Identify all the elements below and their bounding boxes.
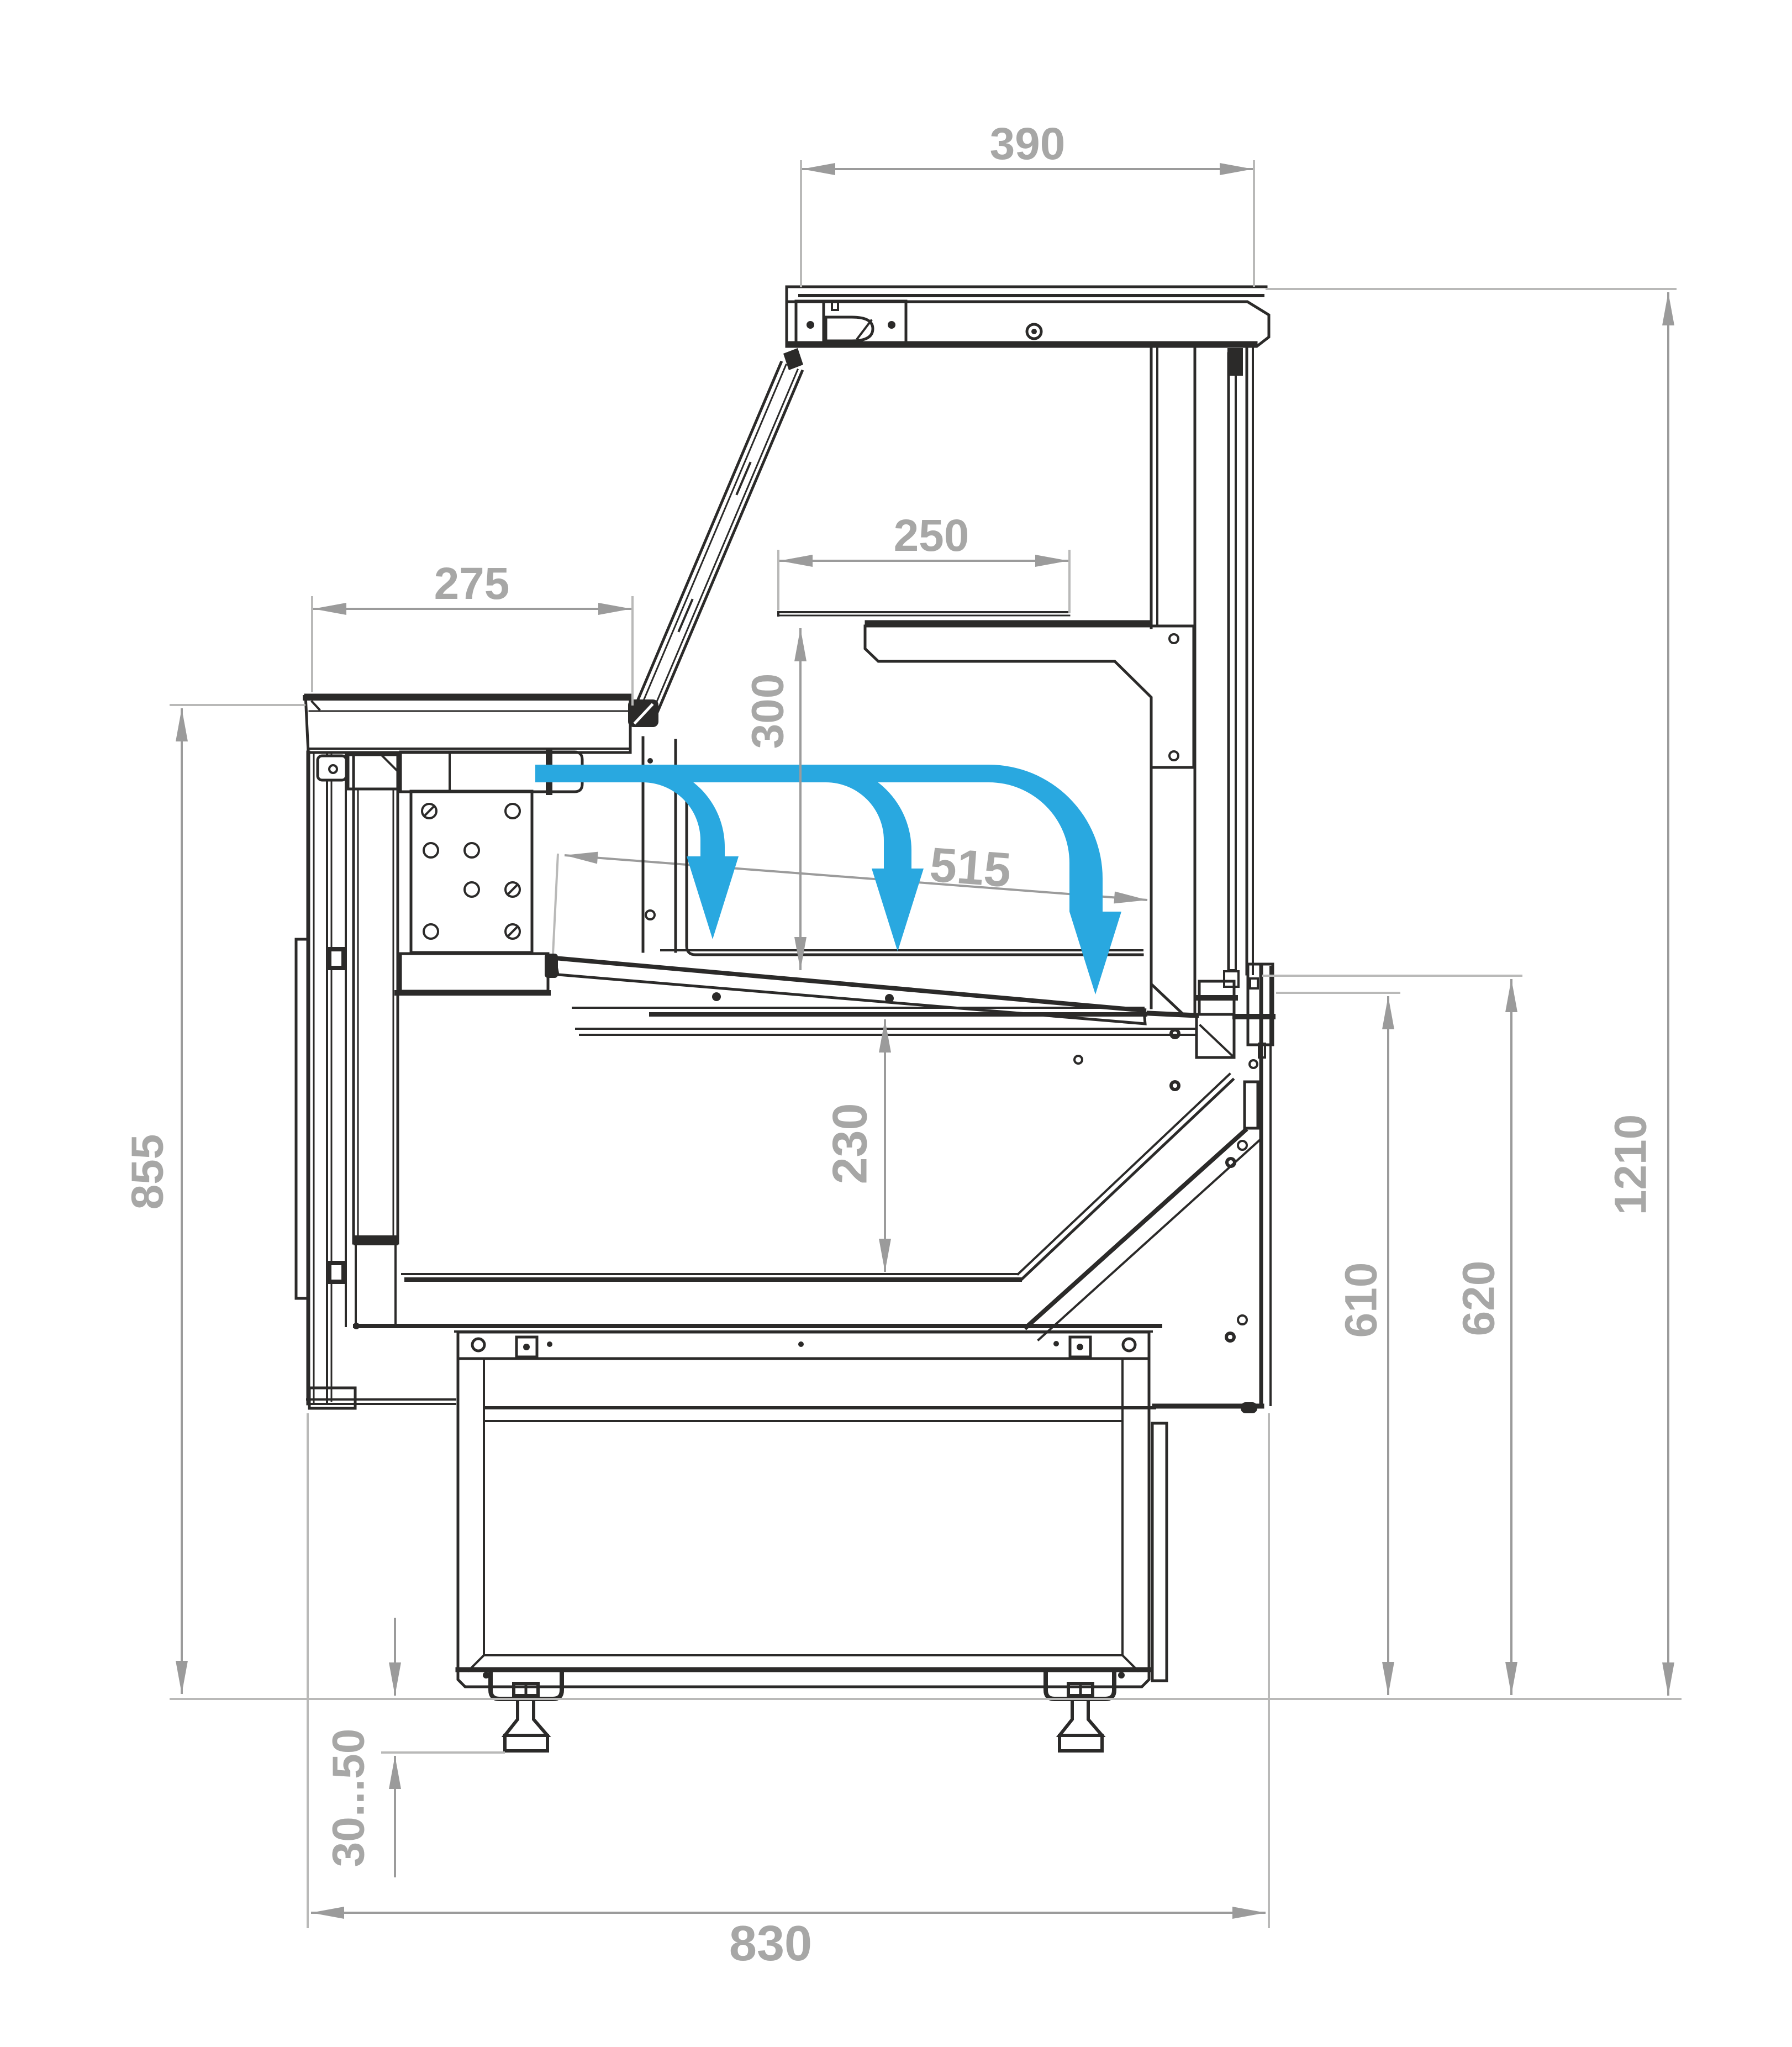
svg-text:830: 830	[729, 1916, 812, 1971]
svg-text:610: 610	[1336, 1262, 1387, 1338]
svg-text:390: 390	[990, 119, 1066, 169]
svg-text:515: 515	[928, 837, 1013, 898]
svg-text:275: 275	[434, 559, 510, 609]
svg-text:1210: 1210	[1606, 1114, 1656, 1215]
svg-text:250: 250	[894, 511, 969, 561]
svg-text:230: 230	[822, 1103, 877, 1185]
svg-text:855: 855	[123, 1134, 173, 1210]
svg-text:300: 300	[743, 673, 793, 749]
svg-text:30...50: 30...50	[324, 1729, 374, 1867]
svg-text:620: 620	[1454, 1261, 1504, 1336]
